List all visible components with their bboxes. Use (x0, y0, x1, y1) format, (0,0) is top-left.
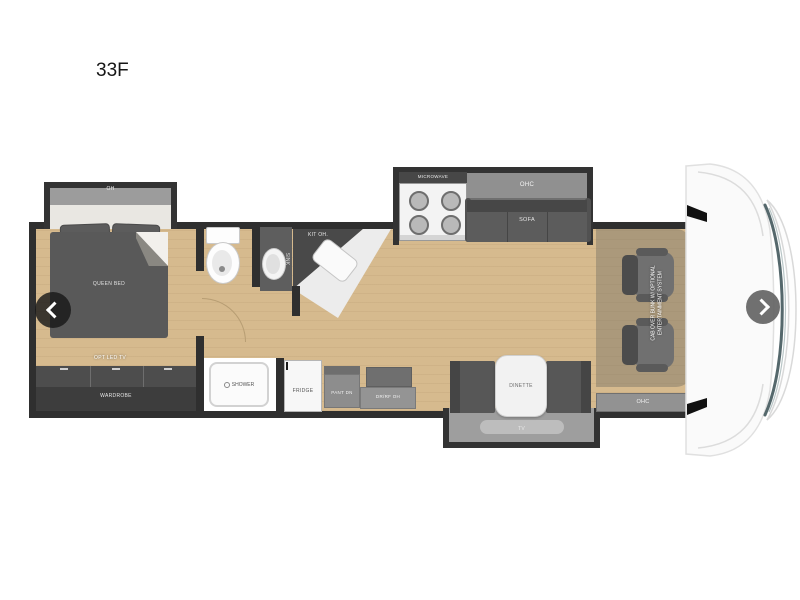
next-button[interactable] (746, 290, 780, 324)
entry-cabinet-top (366, 367, 412, 387)
shower-wall (276, 358, 284, 411)
bath-sink-label: SINK (283, 244, 289, 274)
stove-cooktop (399, 183, 467, 241)
fridge-label: FRIDGE (284, 389, 322, 395)
shower-pan: SHOWER (209, 362, 269, 407)
stove-knob-strip (400, 235, 466, 240)
wardrobe-label: WARDROBE (36, 394, 196, 400)
sofa-label: SOFA (467, 217, 587, 223)
chevron-right-icon (753, 299, 770, 316)
kitchen-wall-stub (292, 286, 300, 316)
drawer-divider (90, 366, 91, 387)
burner-icon (441, 191, 461, 211)
microwave-label: MICROWAVE (399, 175, 467, 180)
entry-cabinet-label: DR/RF OH (360, 395, 416, 400)
drawer-handle (60, 368, 68, 370)
dinette-bench (546, 361, 591, 413)
dinette-bench (450, 361, 495, 413)
kitchen-overhead-label: KIT OH. (296, 233, 340, 239)
drawer-handle (112, 368, 120, 370)
prev-button[interactable] (35, 292, 71, 328)
burner-icon (409, 215, 429, 235)
floorplan-page: 33F OH QUEEN BED OPT LED TV WARDROBE SIN… (0, 0, 800, 600)
drawer-handle (164, 368, 172, 370)
bedroom-dresser (36, 366, 196, 387)
burner-icon (441, 215, 461, 235)
drawer-divider (143, 366, 144, 387)
bench-back (581, 361, 591, 413)
bench-back (450, 361, 460, 413)
bath-sink-basin (266, 254, 280, 274)
queen-bed-label: QUEEN BED (50, 282, 168, 288)
bath-wall (196, 336, 204, 411)
fridge-hinge (286, 362, 288, 370)
toilet-drain (219, 266, 225, 272)
opt-led-tv-label: OPT LED TV (58, 356, 162, 362)
chair-back (622, 255, 638, 295)
dinette-label: DINETTE (495, 384, 547, 390)
burner-icon (409, 191, 429, 211)
bedroom-slide-label: OH (44, 187, 177, 193)
shower-label: SHOWER (232, 382, 255, 388)
kitchen-ohc-label: OHC (467, 182, 587, 189)
shower-head-icon (224, 382, 230, 388)
bath-divider-wall (252, 229, 260, 287)
pantry-label: PANT DN (324, 391, 360, 396)
fridge (284, 360, 322, 412)
chair-back (622, 325, 638, 365)
bath-wall (196, 229, 204, 271)
toilet-bowl (212, 250, 232, 276)
chevron-left-icon (46, 302, 63, 319)
sofa-back (467, 200, 587, 212)
page-title: 33F (96, 60, 129, 82)
dinette-tv-label: TV (443, 427, 600, 433)
